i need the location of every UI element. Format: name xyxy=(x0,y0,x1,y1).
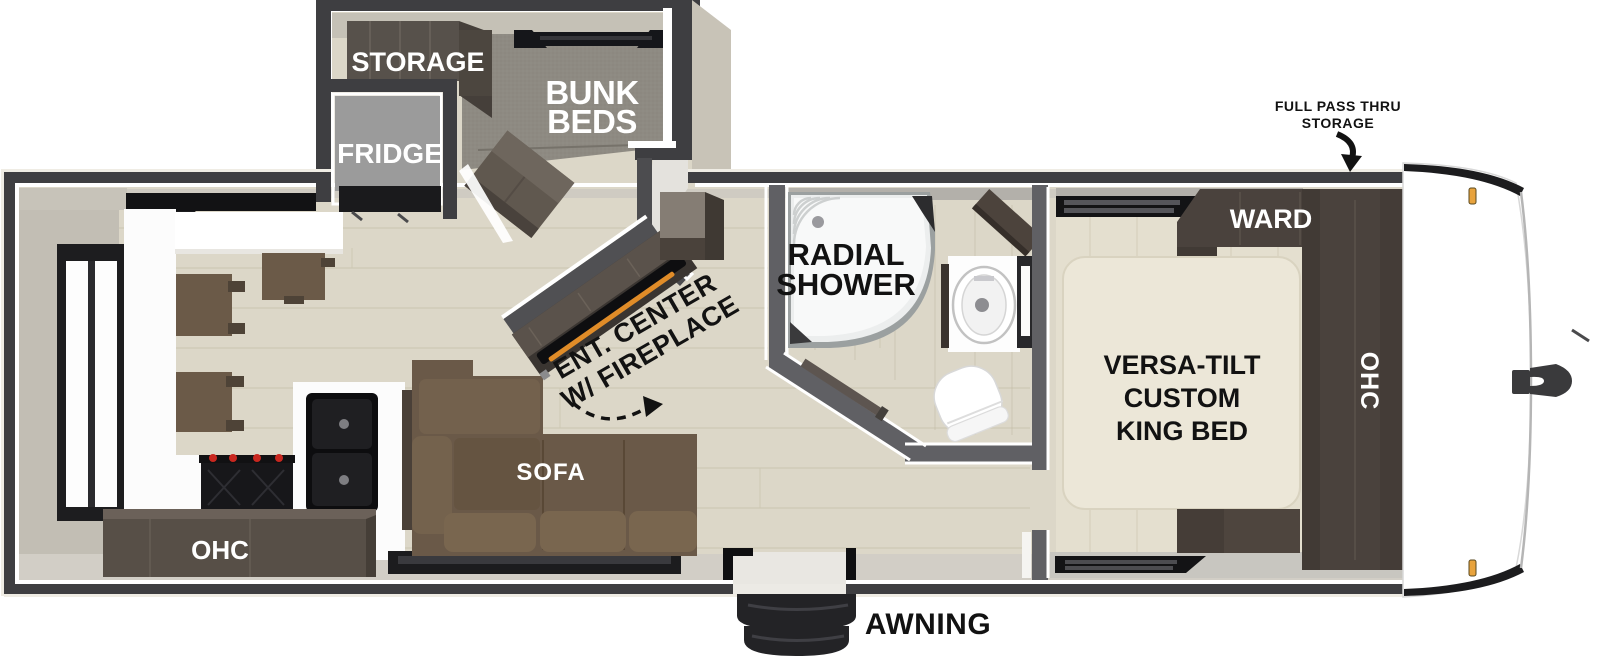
svg-text:KING BED: KING BED xyxy=(1116,416,1248,446)
svg-text:AWNING: AWNING xyxy=(865,608,991,641)
svg-text:VERSA-TILT: VERSA-TILT xyxy=(1104,350,1261,380)
svg-text:BEDS: BEDS xyxy=(547,103,637,140)
svg-text:OHC: OHC xyxy=(191,535,249,565)
svg-text:CUSTOM: CUSTOM xyxy=(1124,383,1241,413)
svg-text:STORAGE: STORAGE xyxy=(1302,115,1374,131)
svg-text:SHOWER: SHOWER xyxy=(776,267,916,302)
svg-text:FRIDGE: FRIDGE xyxy=(337,138,443,169)
svg-text:SOFA: SOFA xyxy=(516,459,585,486)
svg-text:STORAGE: STORAGE xyxy=(351,47,484,77)
svg-text:WARD: WARD xyxy=(1230,204,1313,234)
svg-text:OHC: OHC xyxy=(1355,352,1383,411)
svg-text:FULL PASS THRU: FULL PASS THRU xyxy=(1275,98,1401,114)
